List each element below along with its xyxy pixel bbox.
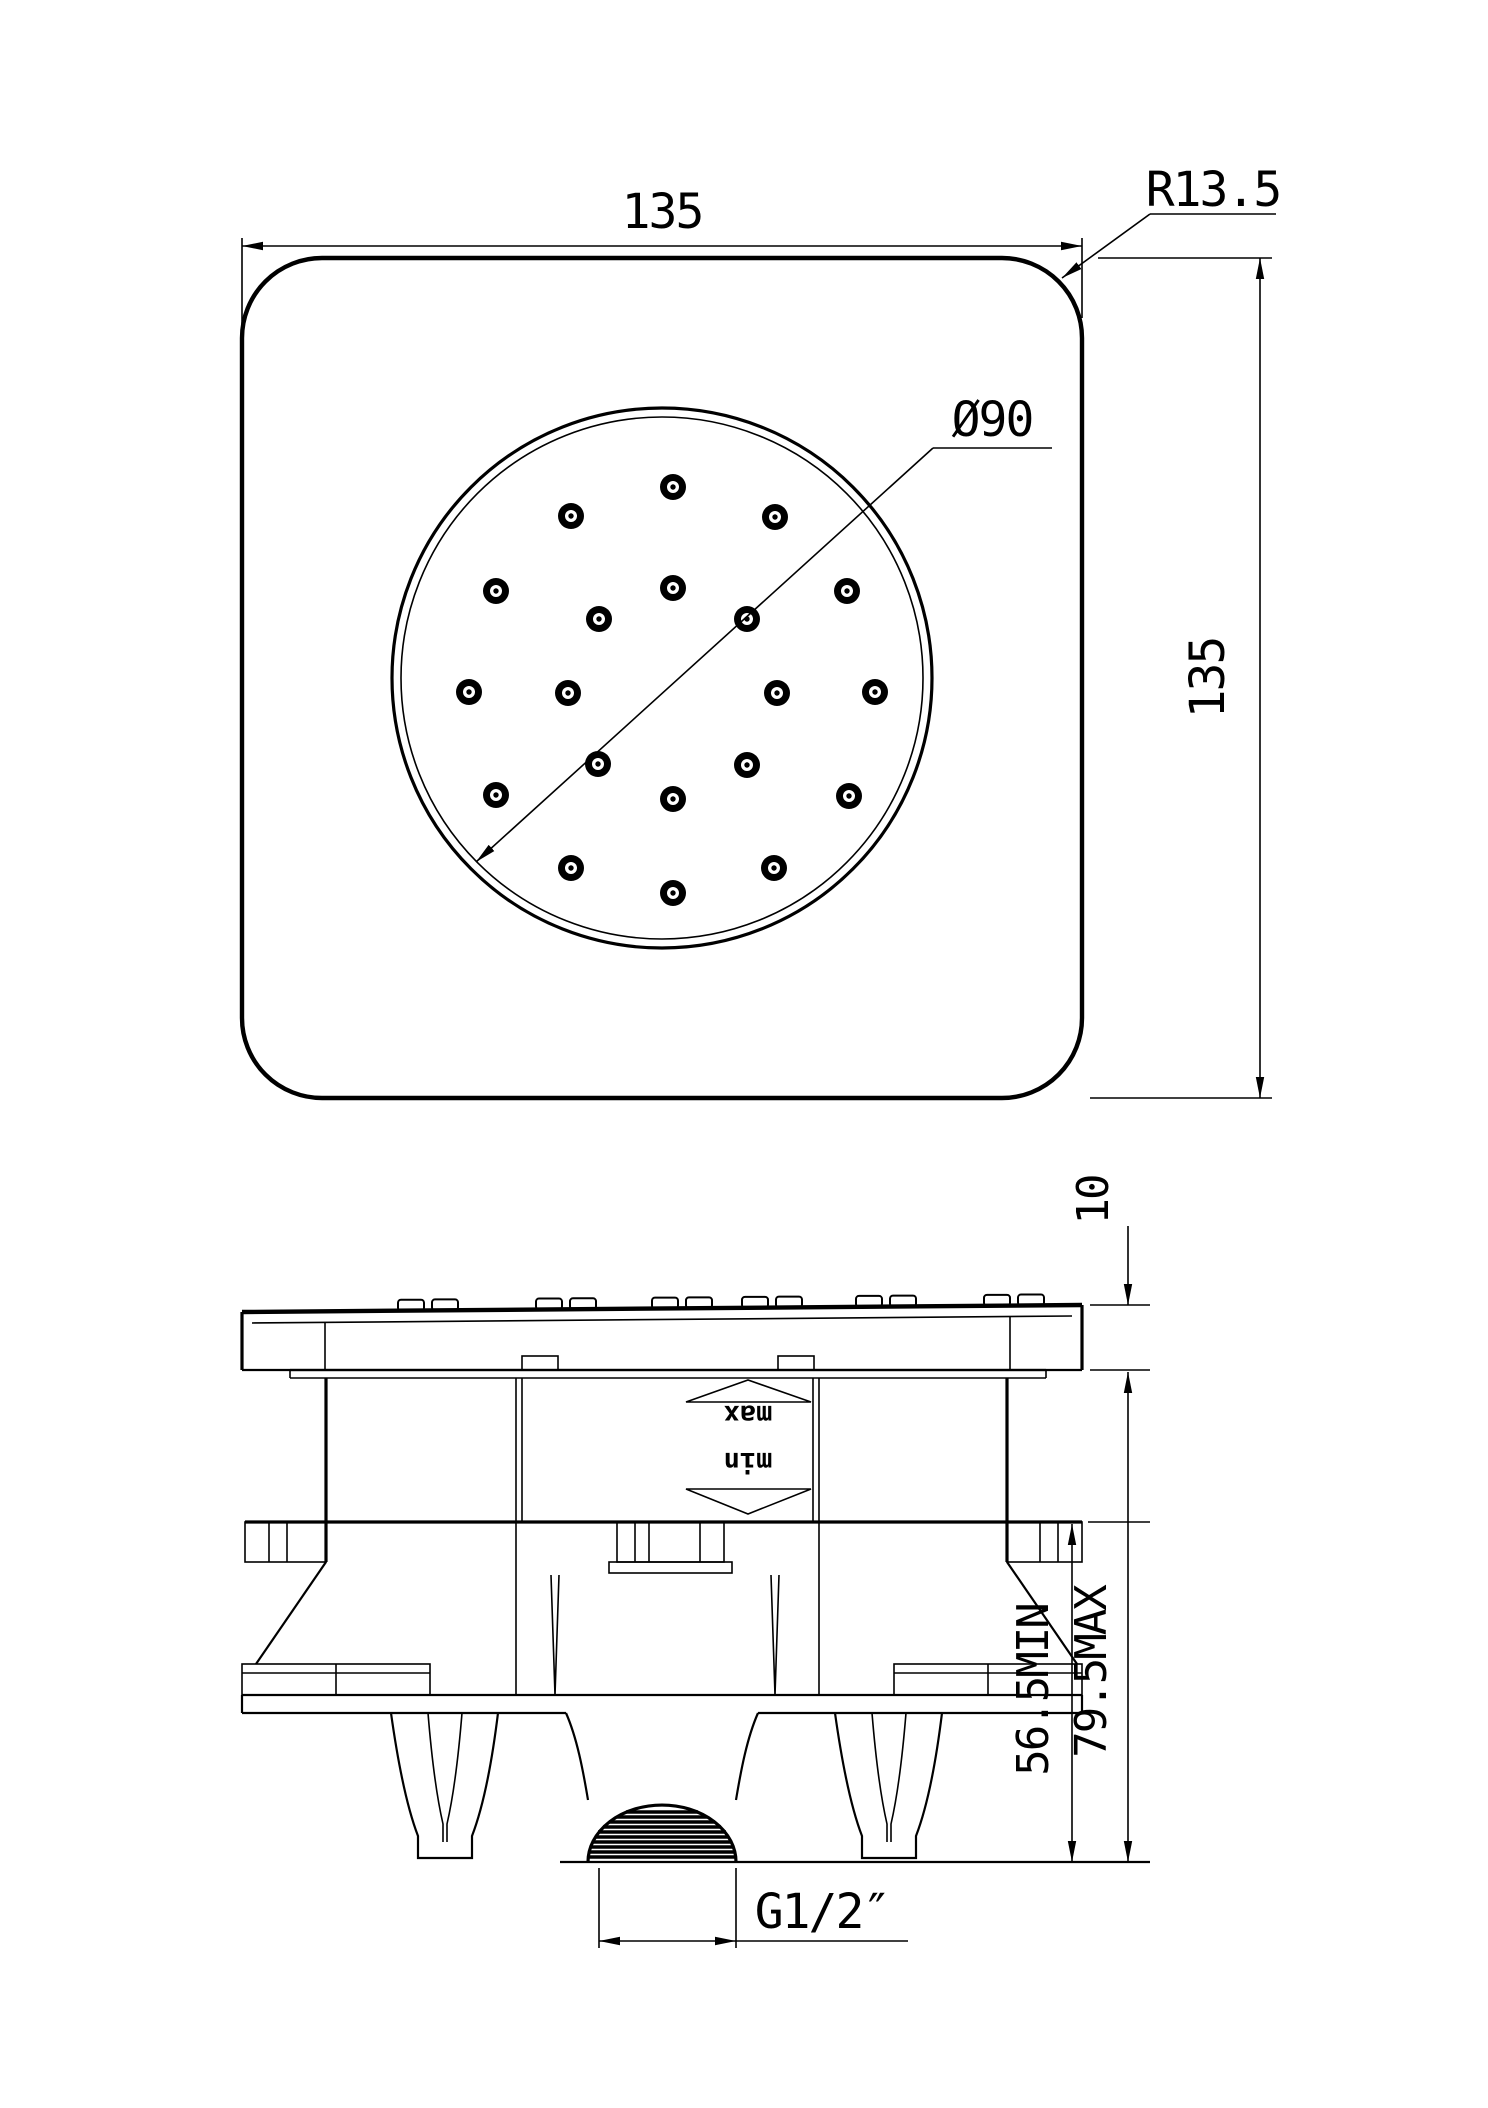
flange-wing-right	[1007, 1522, 1082, 1562]
flange-wing-left	[245, 1522, 326, 1562]
nozzle-pattern	[456, 474, 888, 906]
dim-label-depth-max: 79.5MAX	[1066, 1584, 1117, 1758]
dim-label-thread: G1/2″	[755, 1884, 890, 1940]
dome-shoulder	[566, 1713, 588, 1800]
nozzle	[774, 690, 779, 695]
dim-side-height: 135	[1090, 258, 1272, 1098]
dim-label-spray-diameter: Ø90	[952, 392, 1033, 448]
side-faceplate	[242, 1295, 1082, 1370]
side-upper-housing	[326, 1378, 1007, 1695]
nozzle	[744, 762, 749, 767]
side-collar	[290, 1356, 1046, 1378]
adjustment-markers: max min	[686, 1380, 811, 1514]
taper-left	[256, 1562, 326, 1664]
faceplate-outline	[242, 258, 1082, 1098]
spray-face-inner-circle	[401, 417, 923, 939]
dim-label-side-height: 135	[1180, 638, 1236, 719]
nozzle	[844, 588, 849, 593]
flange-centre-block	[617, 1522, 724, 1562]
block-lip	[609, 1562, 732, 1573]
side-lower-housing	[242, 1562, 1082, 1713]
dim-spray-diameter: Ø90	[476, 392, 1052, 862]
dome-shoulder	[736, 1713, 758, 1800]
technical-drawing: 135 135 R13.5 Ø90	[0, 0, 1488, 2108]
clip-tab	[522, 1356, 558, 1370]
top-view: 135 135 R13.5 Ø90	[242, 162, 1280, 1098]
clip-tab	[778, 1356, 814, 1370]
max-marker-label: max	[724, 1399, 773, 1430]
nozzle	[670, 484, 675, 489]
foot-prong-line	[447, 1713, 462, 1842]
foot-prong-line	[891, 1713, 906, 1842]
thread-dome	[566, 1713, 758, 1862]
side-view: max min	[242, 1176, 1150, 1948]
nozzle	[670, 585, 675, 590]
side-flange	[245, 1522, 1082, 1573]
foot-prong-line	[428, 1713, 443, 1842]
diameter-leader-line	[476, 448, 933, 862]
max-arrow-icon	[686, 1380, 811, 1402]
plate-top-inner-edge	[252, 1316, 1072, 1323]
dim-corner-radius: R13.5	[1062, 162, 1280, 278]
nozzle	[595, 761, 600, 766]
dim-depth-max: 79.5MAX	[1066, 1372, 1128, 1862]
nozzle	[670, 890, 675, 895]
dim-label-plate-thickness: 10	[1068, 1176, 1119, 1225]
nozzle	[670, 796, 675, 801]
min-marker-label: min	[724, 1446, 773, 1477]
nozzle	[872, 689, 877, 694]
nozzle	[846, 793, 851, 798]
nozzle	[596, 616, 601, 621]
foot-prong-line	[872, 1713, 887, 1842]
nozzle	[565, 690, 570, 695]
nozzle	[466, 689, 471, 694]
inner-rib-spike	[771, 1575, 779, 1695]
dim-thread: G1/2″	[599, 1868, 908, 1948]
dim-label-corner-radius: R13.5	[1146, 162, 1281, 218]
min-arrow-icon	[686, 1489, 811, 1514]
nozzle	[493, 792, 498, 797]
dim-label-depth-min: 56.5MIN	[1008, 1604, 1059, 1775]
nozzle	[771, 865, 776, 870]
nozzle	[568, 513, 573, 518]
foot-left	[391, 1713, 498, 1858]
nozzle	[772, 514, 777, 519]
dim-label-top-width: 135	[622, 184, 703, 240]
nozzle	[493, 588, 498, 593]
foot-right	[835, 1713, 942, 1858]
thread-hatch	[588, 1812, 736, 1857]
inner-rib-spike	[551, 1575, 559, 1695]
dim-plate-thickness: 10	[1068, 1176, 1150, 1370]
nozzle	[568, 865, 573, 870]
drawing-sheet: 135 135 R13.5 Ø90	[0, 0, 1488, 2108]
